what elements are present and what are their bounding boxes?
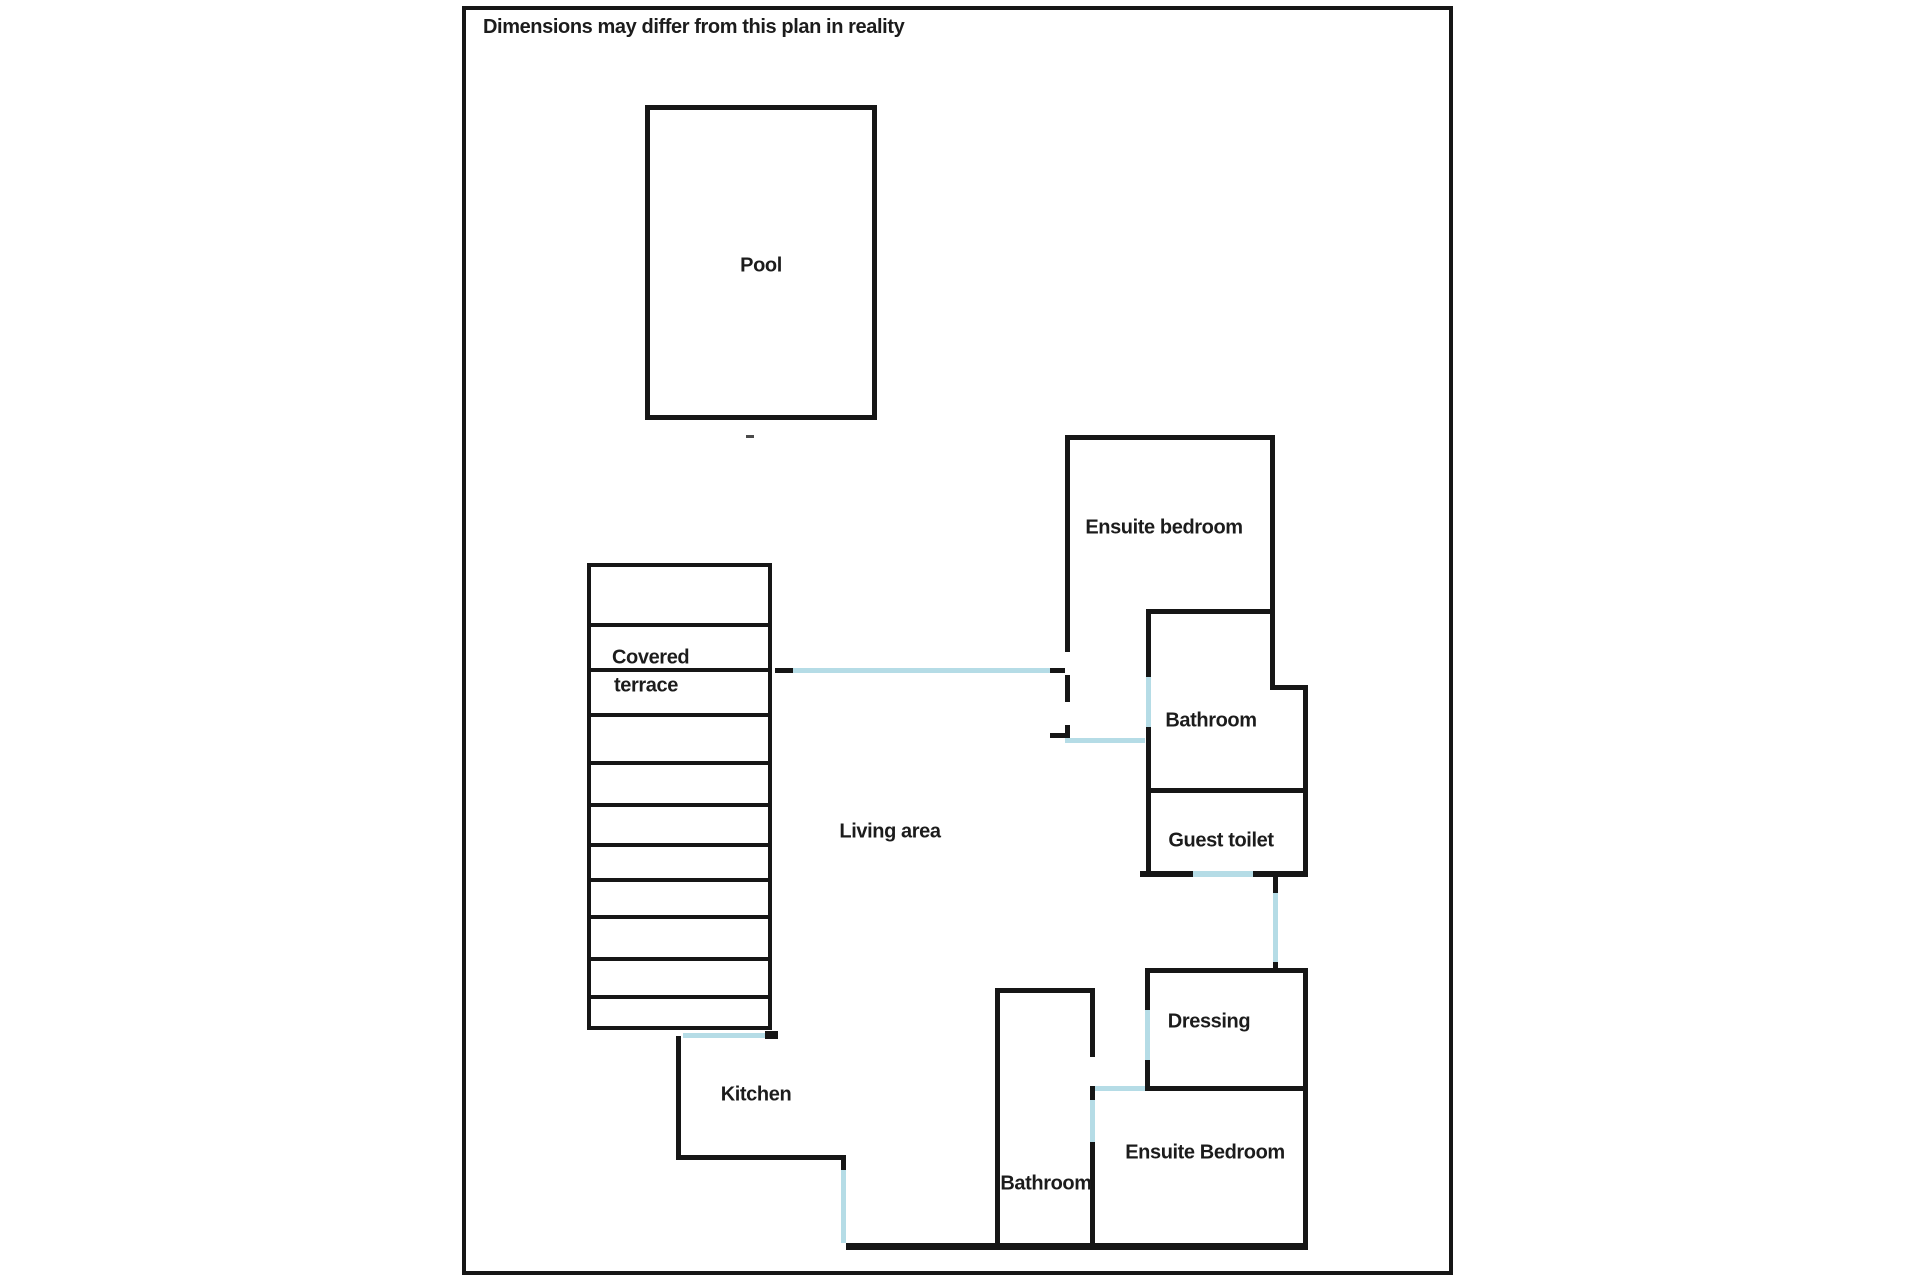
bathroom-bottom-wall-top: [995, 988, 1095, 993]
room-label-living-area: Living area: [839, 821, 940, 844]
room-label-bathroom-bottom: Bathroom: [1000, 1173, 1091, 1196]
bathroom-top-wall-top: [1147, 609, 1275, 614]
room-label-ensuite-bedroom-top: Ensuite bedroom: [1085, 517, 1242, 540]
disclaimer-text: Dimensions may differ from this plan in …: [483, 16, 904, 39]
room-label-bathroom-top: Bathroom: [1165, 710, 1256, 733]
terrace-door-tick: [765, 1031, 778, 1039]
terrace-slat: [587, 623, 772, 627]
guest-toilet-door: [1193, 871, 1253, 877]
right-wing-wall-right: [1303, 685, 1308, 876]
bathroom-top-door: [1146, 677, 1151, 727]
terrace-slat: [587, 995, 772, 999]
terrace-slat: [587, 843, 772, 847]
living-door-tick-left: [775, 668, 793, 673]
terrace-slat: [587, 713, 772, 717]
ensuite-bottom-door: [1095, 1086, 1145, 1091]
living-door-tick-right: [1050, 668, 1065, 673]
kitchen-wall-bottom: [676, 1155, 846, 1160]
bathroom-bottom-wall-right: [1090, 988, 1095, 1057]
kitchen-hall-opening: [841, 1170, 846, 1243]
terrace-slat: [587, 957, 772, 961]
ensuite-top-wall-top: [1065, 435, 1275, 440]
ensuite-top-wall-tick: [1050, 733, 1065, 738]
terrace-slat: [587, 803, 772, 807]
ensuite-top-wall-left: [1065, 675, 1070, 702]
small-dash-mark: [746, 435, 754, 438]
guest-toilet-wall-left: [1146, 788, 1151, 876]
guest-toilet-wall-bottom: [1140, 871, 1193, 877]
terrace-slat: [587, 761, 772, 765]
kitchen-wall-tick: [841, 1155, 846, 1170]
bathroom-bottom-door: [1090, 1100, 1095, 1142]
room-label-covered-terrace-line1: Covered: [612, 647, 689, 670]
ensuite-top-hall-door: [1065, 738, 1145, 743]
dressing-wall-left: [1145, 968, 1150, 1010]
bathroom-top-wall-left: [1146, 609, 1151, 677]
kitchen-wall-left: [676, 1036, 681, 1160]
bathroom-top-wall-left: [1146, 727, 1151, 791]
room-label-pool: Pool: [740, 255, 782, 278]
guest-toilet-wall-bottom: [1253, 871, 1308, 877]
hall-connector-tick: [1273, 876, 1278, 893]
room-label-dressing: Dressing: [1168, 1011, 1250, 1034]
right-wing-wall-right: [1303, 968, 1308, 1247]
room-label-kitchen: Kitchen: [721, 1084, 792, 1107]
terrace-kitchen-door: [683, 1033, 765, 1038]
terrace-slat: [587, 878, 772, 882]
ensuite-top-wall-left: [1065, 435, 1070, 652]
dressing-wall-bottom: [1145, 1086, 1308, 1091]
bathroom-top-wall-bottom: [1146, 788, 1308, 793]
hall-connector-opening: [1273, 893, 1278, 962]
floor-plan-canvas: Dimensions may differ from this plan in …: [0, 0, 1920, 1280]
room-label-covered-terrace-line2: terrace: [614, 675, 678, 698]
bottom-main-wall: [846, 1243, 1308, 1250]
dressing-door: [1145, 1010, 1150, 1060]
bathroom-bottom-wall-left: [995, 988, 1000, 1247]
dressing-wall-left: [1145, 1060, 1150, 1086]
terrace-slat: [587, 915, 772, 919]
living-area-opening: [793, 668, 1050, 673]
ensuite-top-wall-right: [1270, 435, 1275, 690]
room-label-ensuite-bedroom-bottom: Ensuite Bedroom: [1125, 1142, 1285, 1165]
dressing-wall-top: [1145, 968, 1308, 973]
room-label-guest-toilet: Guest toilet: [1168, 830, 1273, 853]
